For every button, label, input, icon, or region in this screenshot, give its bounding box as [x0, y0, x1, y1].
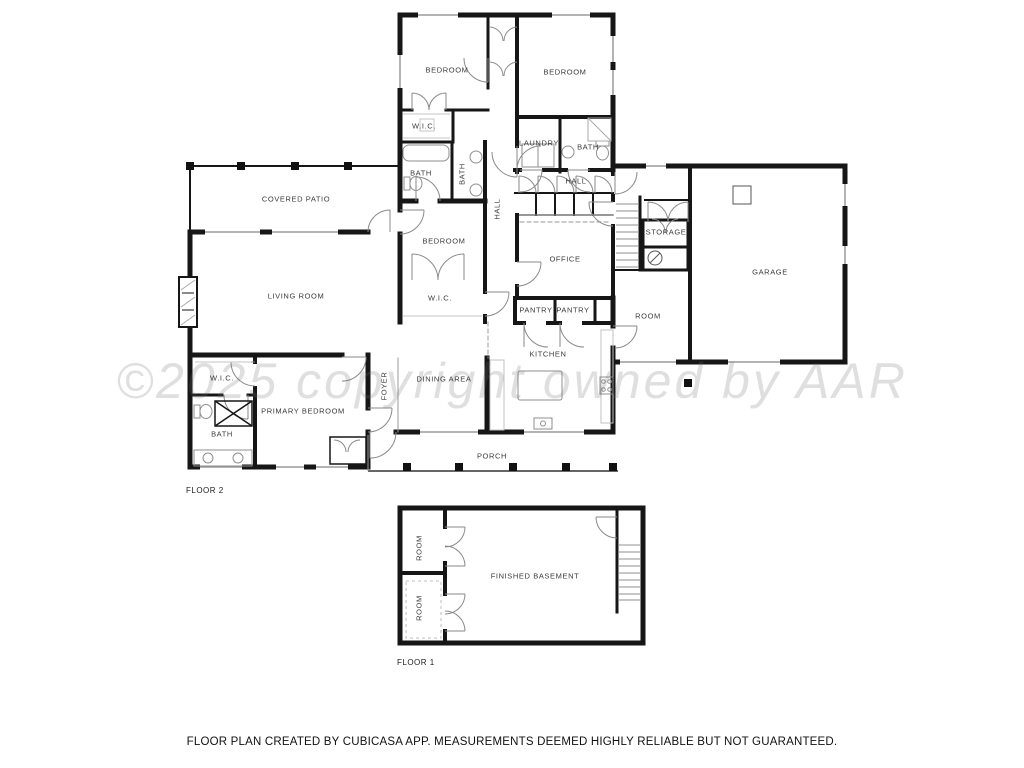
room-label-living-room: LIVING ROOM: [268, 292, 325, 301]
room-label-wic-middle: W.I.C.: [428, 294, 452, 303]
room-label-pantry-2: PANTRY: [556, 306, 589, 315]
copyright-watermark: ©2025 copyright owned by AAR: [116, 352, 908, 410]
sink-icon: [470, 151, 482, 163]
room-label-kitchen: KITCHEN: [529, 350, 566, 359]
room-label-bath-3: BATH: [577, 143, 599, 152]
room-label-hall-1: HALL: [565, 177, 586, 186]
room-label-foyer: FOYER: [380, 372, 389, 401]
floor1-stairs: [619, 545, 641, 600]
vanity-icon: [194, 450, 252, 466]
toilet-icon: [404, 177, 422, 191]
sink-icon: [562, 146, 574, 158]
room-label-storage: STORAGE: [646, 228, 687, 237]
room-label-bedroom-3: BEDROOM: [423, 237, 466, 246]
garage-fixture-icon: [733, 186, 751, 204]
room-label-wic-top: W.I.C.: [412, 122, 436, 131]
sink-icon: [470, 184, 482, 196]
room-label-bath-primary: BATH: [211, 430, 233, 439]
floorplan-page: ©2025 copyright owned by AAR: [0, 0, 1024, 768]
water-heater-icon: [648, 251, 662, 265]
room-label-room: ROOM: [635, 312, 661, 321]
stairs-floor2: [616, 204, 639, 267]
floor1-caption: FLOOR 1: [397, 658, 435, 667]
room-label-porch: PORCH: [477, 452, 507, 461]
room-label-basement-room-2: ROOM: [415, 595, 424, 621]
room-label-bath-1: BATH: [410, 169, 432, 178]
shower-icon: [588, 118, 611, 141]
room-label-bath-2: BATH: [458, 163, 467, 185]
room-label-office: OFFICE: [549, 255, 580, 264]
room-label-garage: GARAGE: [752, 268, 788, 277]
room-label-dining-area: DINING AREA: [417, 375, 472, 384]
room-label-covered-patio: COVERED PATIO: [262, 195, 330, 204]
kitchen-sink-icon: [534, 418, 552, 429]
room-label-wic-primary: W.I.C.: [210, 374, 234, 383]
room-label-finished-basement: FINISHED BASEMENT: [491, 572, 580, 581]
disclaimer-text: FLOOR PLAN CREATED BY CUBICASA APP. MEAS…: [187, 736, 838, 748]
room-label-hall-2: HALL: [493, 198, 502, 219]
room-label-bedroom-2: BEDROOM: [544, 68, 587, 77]
room-label-laundry: LAUNDRY: [519, 139, 559, 148]
room-label-basement-room-1: ROOM: [415, 535, 424, 561]
floor2-caption: FLOOR 2: [186, 486, 224, 495]
room-label-bedroom-1: BEDROOM: [426, 66, 469, 75]
room-label-primary-bedroom: PRIMARY BEDROOM: [261, 407, 345, 416]
room-label-pantry-1: PANTRY: [519, 306, 552, 315]
bathtub-icon: [403, 145, 449, 161]
